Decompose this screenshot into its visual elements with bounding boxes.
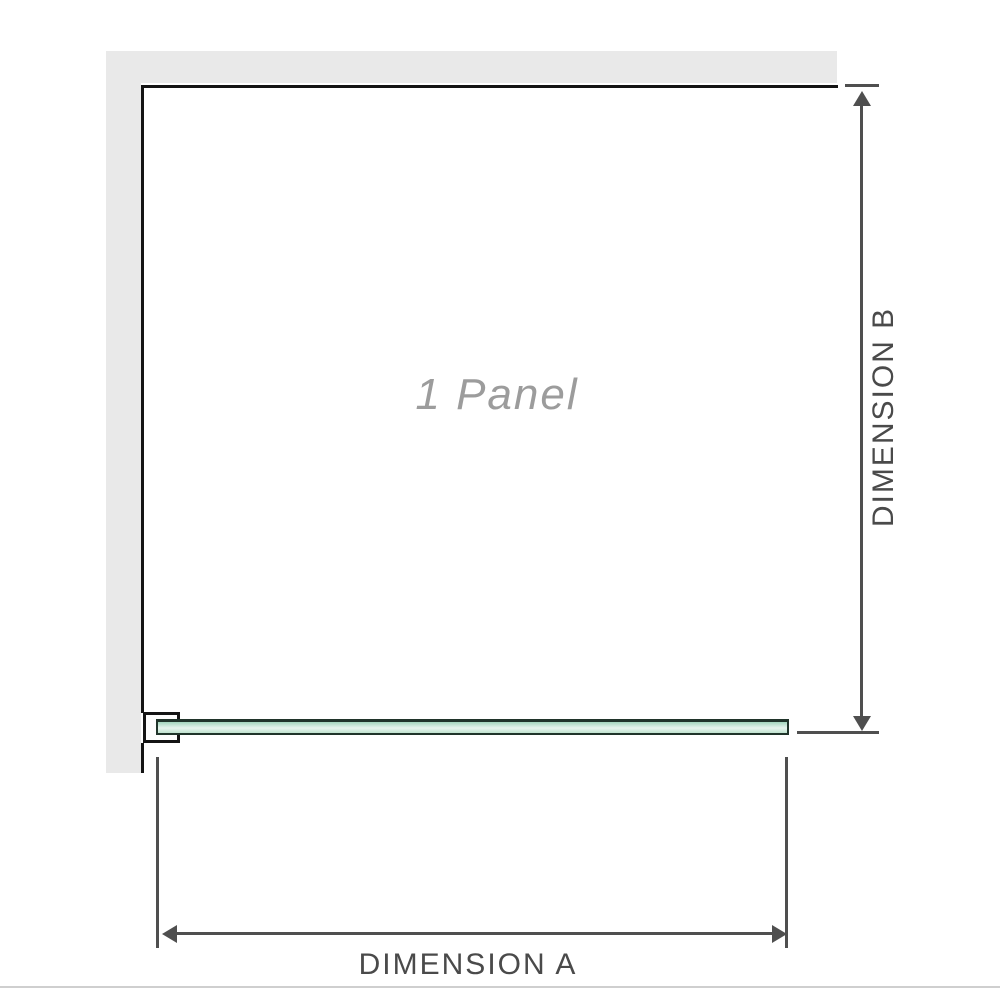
dim-a-label: DIMENSION A [308,948,628,982]
dim-b-line [860,100,863,718]
panel-count-label: 1 Panel [347,370,647,420]
dim-a-line [168,932,776,935]
dim-b-tick-top [845,84,879,87]
dim-a-arrow-right-icon [772,925,790,943]
panel-dimension-diagram: 1 Panel DIMENSION B DIMENSION A [0,0,1000,1000]
dim-a-extension-right [785,757,788,948]
dim-a-extension-left [156,757,159,948]
wall-left [106,51,141,773]
dim-b-tick-bottom [797,731,879,734]
panel-border-top [141,85,838,88]
panel-border-left-upper [141,85,144,713]
bottom-divider-line [0,986,1000,988]
dim-b-label: DIMENSION B [867,307,901,527]
wall-top [106,51,837,83]
panel-border-left-lower [141,743,144,773]
glass-panel-bar [156,719,789,735]
